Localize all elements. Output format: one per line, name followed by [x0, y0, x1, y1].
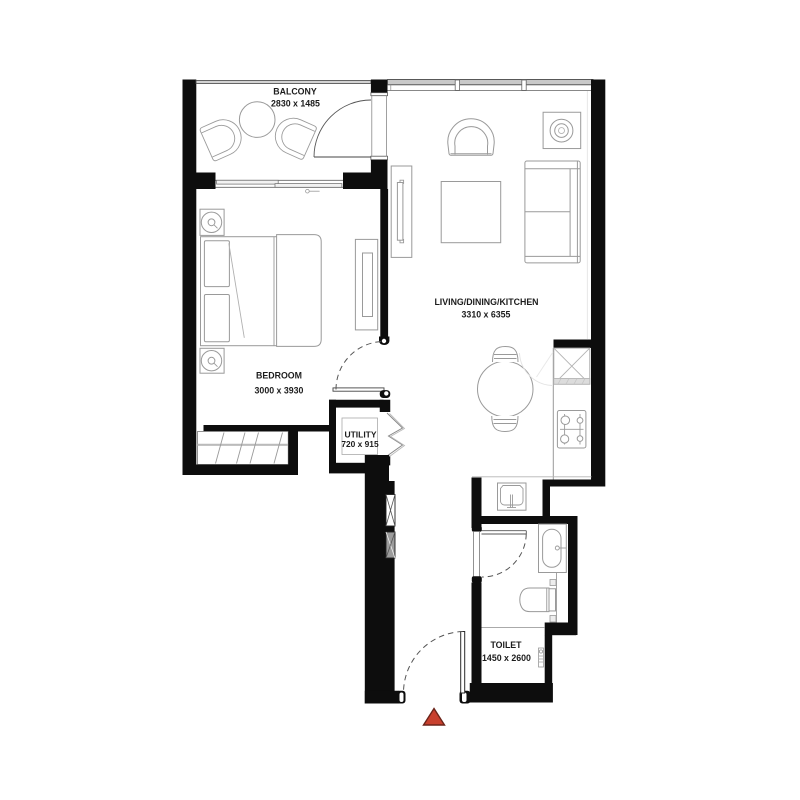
- svg-text:LIVING/DINING/KITCHEN: LIVING/DINING/KITCHEN: [434, 297, 538, 307]
- svg-text:720 x 915: 720 x 915: [341, 439, 379, 449]
- svg-text:BEDROOM: BEDROOM: [256, 371, 302, 381]
- svg-text:1450 x 2600: 1450 x 2600: [482, 653, 531, 663]
- svg-text:TOILET: TOILET: [490, 640, 522, 650]
- svg-text:3310 x 6355: 3310 x 6355: [462, 310, 511, 320]
- svg-text:BALCONY: BALCONY: [273, 87, 317, 97]
- svg-text:2830 x 1485: 2830 x 1485: [271, 99, 320, 109]
- svg-text:3000 x 3930: 3000 x 3930: [255, 386, 304, 396]
